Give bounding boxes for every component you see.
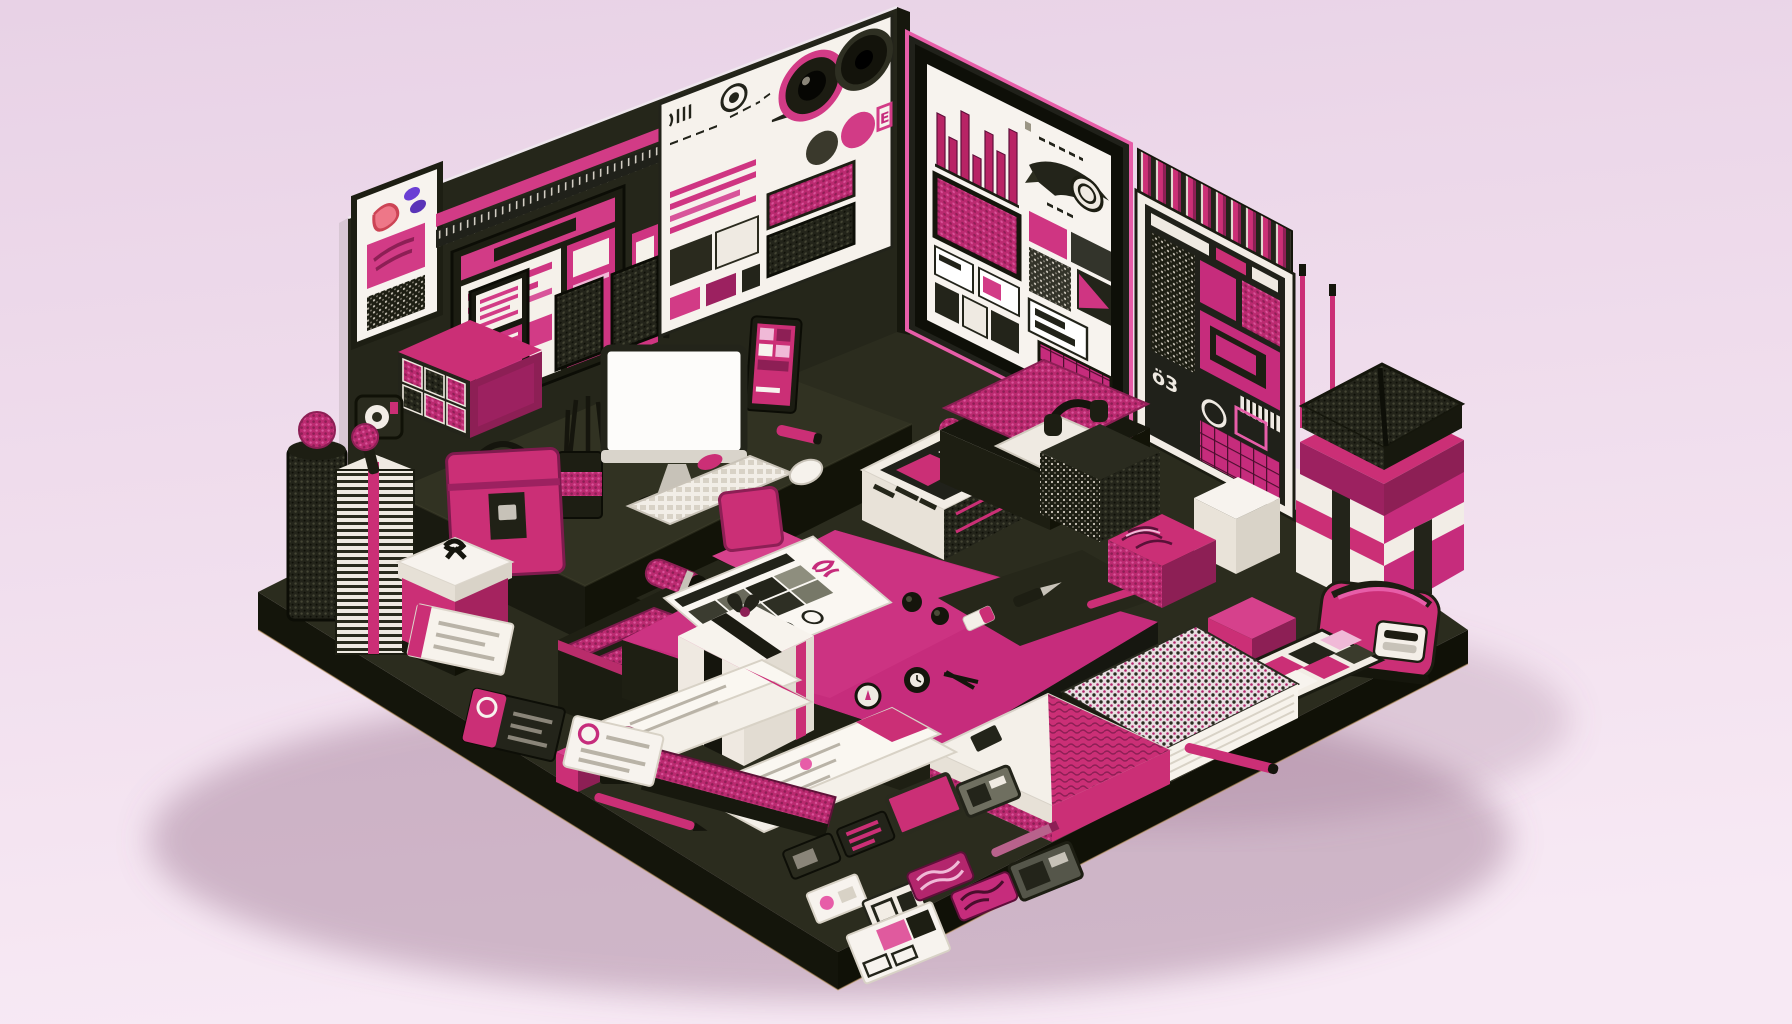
poster-bar (961, 111, 969, 181)
poster-bar (937, 113, 945, 169)
tablet (745, 316, 801, 413)
poster-bar (973, 155, 981, 187)
studio-diorama: G E (0, 0, 1792, 1024)
parcel-stack (1296, 364, 1464, 616)
poster-bar (985, 131, 993, 193)
pompom (299, 412, 335, 448)
diorama-canvas: G E (0, 0, 1792, 1024)
poster-bar (1009, 129, 1017, 205)
blob-poster (354, 165, 440, 346)
poster-bar (949, 137, 957, 175)
rack-halftone (1151, 232, 1195, 373)
compass (856, 684, 880, 708)
pocket-watch (904, 667, 930, 693)
poster-bar (997, 151, 1005, 199)
